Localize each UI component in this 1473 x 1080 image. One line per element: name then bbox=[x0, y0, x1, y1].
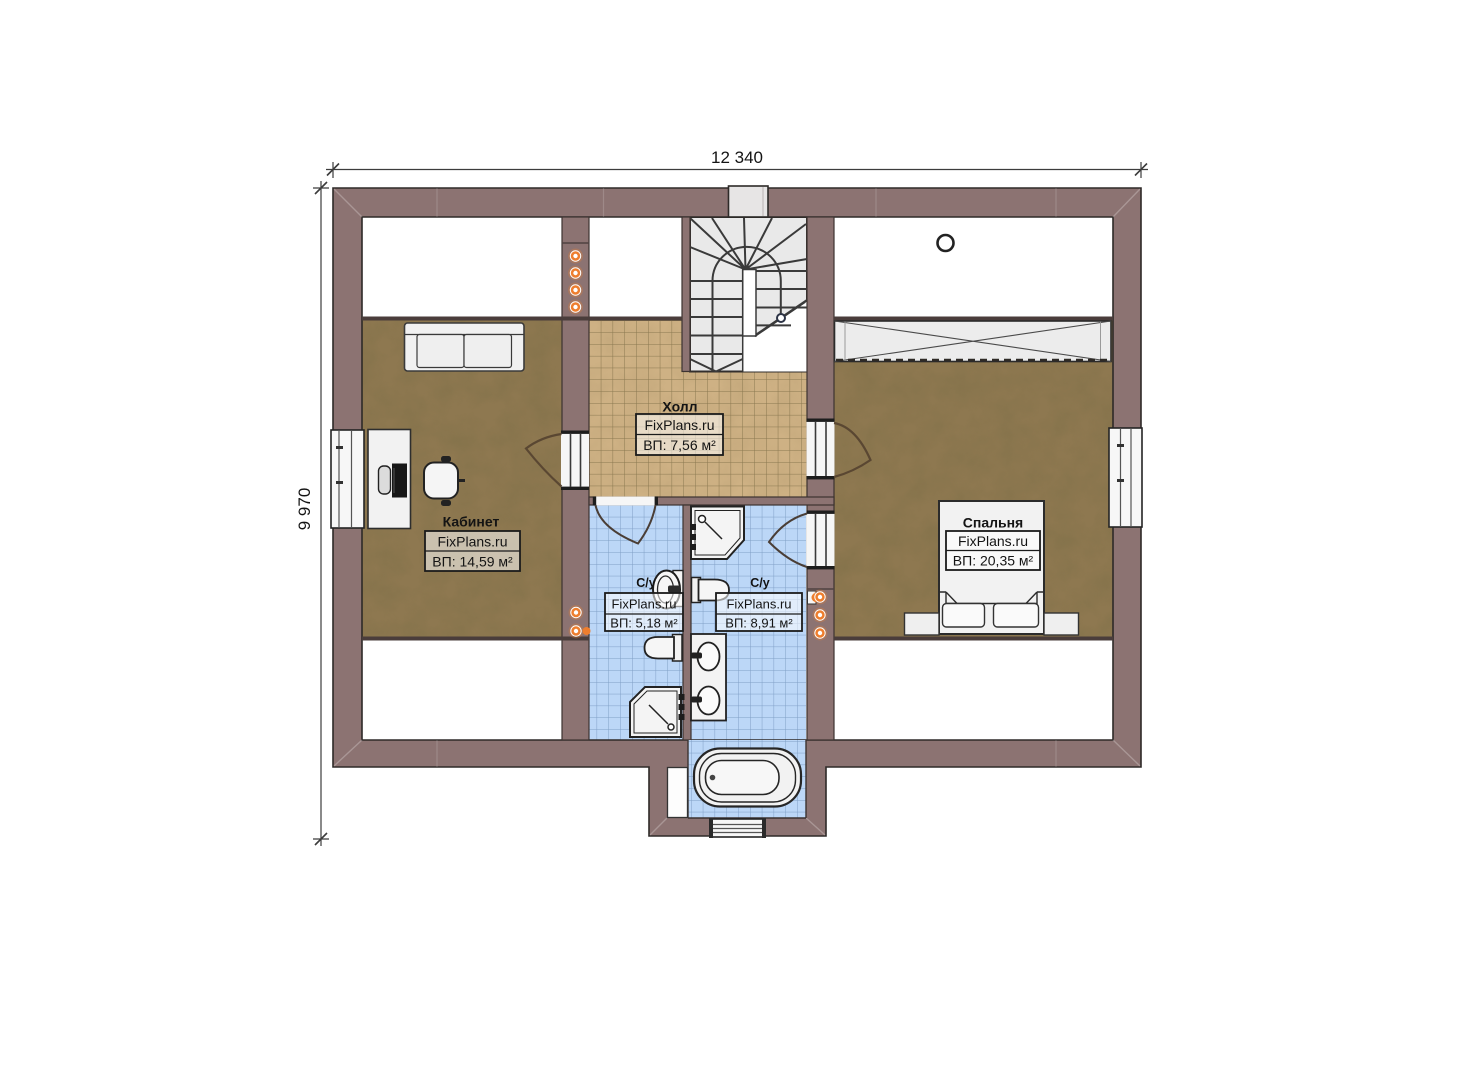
svg-text:ВП: 20,35 м²: ВП: 20,35 м² bbox=[953, 553, 1034, 569]
svg-text:FixPlans.ru: FixPlans.ru bbox=[644, 417, 714, 433]
svg-text:С/у: С/у bbox=[750, 576, 770, 590]
svg-text:ВП: 7,56 м²: ВП: 7,56 м² bbox=[643, 437, 716, 453]
svg-text:FixPlans.ru: FixPlans.ru bbox=[611, 597, 676, 612]
svg-text:Холл: Холл bbox=[662, 399, 697, 415]
svg-text:С/у: С/у bbox=[636, 576, 656, 590]
svg-text:Кабинет: Кабинет bbox=[443, 514, 500, 530]
svg-text:9 970: 9 970 bbox=[295, 488, 314, 531]
svg-text:FixPlans.ru: FixPlans.ru bbox=[726, 597, 791, 612]
svg-text:FixPlans.ru: FixPlans.ru bbox=[958, 533, 1028, 549]
svg-text:Спальня: Спальня bbox=[963, 515, 1023, 531]
svg-text:12 340: 12 340 bbox=[711, 148, 763, 167]
svg-text:ВП: 14,59 м²: ВП: 14,59 м² bbox=[432, 554, 513, 570]
svg-text:ВП: 5,18 м²: ВП: 5,18 м² bbox=[610, 616, 678, 631]
svg-text:FixPlans.ru: FixPlans.ru bbox=[437, 534, 507, 550]
svg-text:ВП: 8,91 м²: ВП: 8,91 м² bbox=[725, 616, 793, 631]
